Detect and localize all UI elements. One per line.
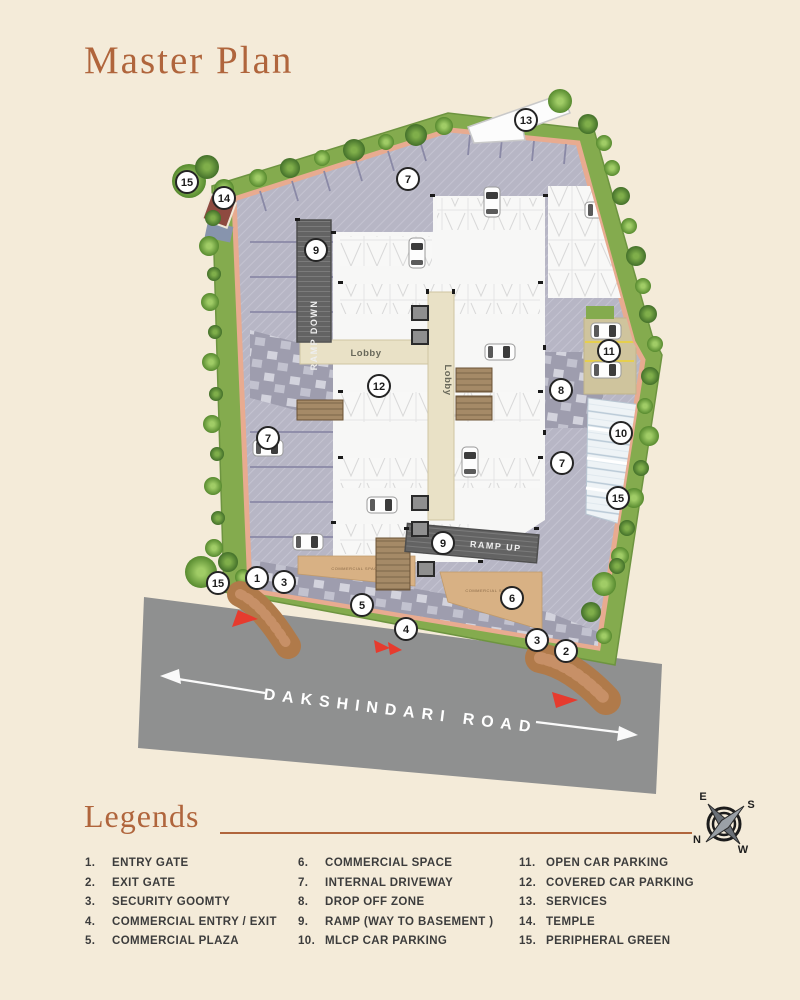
- lobby-label-horizontal: Lobby: [351, 348, 382, 359]
- legend-item-drop-off-zone: 8.DROP OFF ZONE: [298, 893, 519, 913]
- svg-text:6: 6: [509, 593, 515, 605]
- marker-entry-gate: 1: [246, 567, 268, 589]
- legend-item-internal-driveway: 7.INTERNAL DRIVEWAY: [298, 874, 519, 894]
- marker-mlcp-parking: 10: [610, 422, 632, 444]
- svg-text:10: 10: [615, 428, 627, 440]
- svg-text:COMMERCIAL SPACE: COMMERCIAL SPACE: [331, 566, 380, 571]
- marker-security-goomty-2: 3: [526, 629, 548, 651]
- legend-item-ramp: 9.RAMP (WAY TO BASEMENT ): [298, 913, 519, 933]
- svg-text:4: 4: [403, 624, 410, 636]
- svg-text:9: 9: [440, 538, 446, 550]
- legend-item-security-goomty: 3.SECURITY GOOMTY: [85, 893, 298, 913]
- legend-item-peripheral-green: 15.PERIPHERAL GREEN: [519, 932, 745, 952]
- legend-item-covered-car-parking: 12.COVERED CAR PARKING: [519, 874, 745, 894]
- svg-text:11: 11: [603, 346, 615, 358]
- legend-item-commercial-plaza: 5.COMMERCIAL PLAZA: [85, 932, 298, 952]
- legend-list: 1.ENTRY GATE 2.EXIT GATE 3.SECURITY GOOM…: [85, 854, 745, 952]
- svg-text:15: 15: [181, 177, 193, 189]
- svg-text:7: 7: [405, 174, 411, 186]
- legends-title: Legends: [84, 798, 199, 835]
- legend-item-services: 13.SERVICES: [519, 893, 745, 913]
- svg-text:1: 1: [254, 573, 260, 585]
- legend-item-exit-gate: 2.EXIT GATE: [85, 874, 298, 894]
- site-plan: DAKSHINDARI ROAD: [0, 0, 800, 795]
- svg-text:7: 7: [559, 458, 565, 470]
- legend-item-temple: 14.TEMPLE: [519, 913, 745, 933]
- marker-peripheral-green-1: 15: [176, 171, 198, 193]
- compass-north-label: N: [693, 834, 701, 846]
- legend-item-commercial-entry-exit: 4.COMMERCIAL ENTRY / EXIT: [85, 913, 298, 933]
- legend-item-commercial-space: 6.COMMERCIAL SPACE: [298, 854, 519, 874]
- svg-text:2: 2: [563, 646, 569, 658]
- svg-text:13: 13: [520, 115, 532, 127]
- legend-column-2: 6.COMMERCIAL SPACE 7.INTERNAL DRIVEWAY 8…: [298, 854, 519, 952]
- marker-ramp-up: 9: [432, 532, 454, 554]
- marker-peripheral-green-2: 15: [607, 487, 629, 509]
- marker-exit-gate: 2: [555, 640, 577, 662]
- marker-internal-driveway-3: 7: [551, 452, 573, 474]
- legend-item-mlcp-car-parking: 10.MLCP CAR PARKING: [298, 932, 519, 952]
- compass-east-label: E: [699, 791, 706, 803]
- legend-column-1: 1.ENTRY GATE 2.EXIT GATE 3.SECURITY GOOM…: [85, 854, 298, 952]
- marker-security-goomty-1: 3: [273, 571, 295, 593]
- svg-text:12: 12: [373, 381, 385, 393]
- marker-peripheral-green-3: 15: [207, 572, 229, 594]
- svg-text:5: 5: [359, 600, 365, 612]
- marker-drop-off-zone: 8: [550, 379, 572, 401]
- svg-text:14: 14: [218, 193, 231, 205]
- svg-text:8: 8: [558, 385, 564, 397]
- svg-text:7: 7: [265, 433, 271, 445]
- svg-text:9: 9: [313, 245, 319, 257]
- legends-rule: [220, 832, 692, 834]
- ramp-down-label: RAMP DOWN: [309, 300, 319, 371]
- svg-text:15: 15: [612, 493, 624, 505]
- marker-covered-car-parking: 12: [368, 375, 390, 397]
- marker-temple: 14: [213, 187, 235, 209]
- marker-commercial-plaza: 5: [351, 594, 373, 616]
- marker-internal-driveway-1: 7: [397, 168, 419, 190]
- marker-services: 13: [515, 109, 537, 131]
- legend-item-open-car-parking: 11.OPEN CAR PARKING: [519, 854, 745, 874]
- compass-south-label: S: [747, 799, 754, 811]
- marker-internal-driveway-2: 7: [257, 427, 279, 449]
- svg-text:15: 15: [212, 578, 224, 590]
- lobby-label-vertical: Lobby: [442, 365, 453, 396]
- svg-text:3: 3: [534, 635, 540, 647]
- legend-column-3: 11.OPEN CAR PARKING 12.COVERED CAR PARKI…: [519, 854, 745, 952]
- marker-open-car-parking: 11: [598, 340, 620, 362]
- svg-text:3: 3: [281, 577, 287, 589]
- legend-item-entry-gate: 1.ENTRY GATE: [85, 854, 298, 874]
- marker-ramp-down: 9: [305, 239, 327, 261]
- marker-commercial-entry-exit: 4: [395, 618, 417, 640]
- compass-rose: E S N W: [684, 780, 768, 864]
- marker-commercial-space: 6: [501, 587, 523, 609]
